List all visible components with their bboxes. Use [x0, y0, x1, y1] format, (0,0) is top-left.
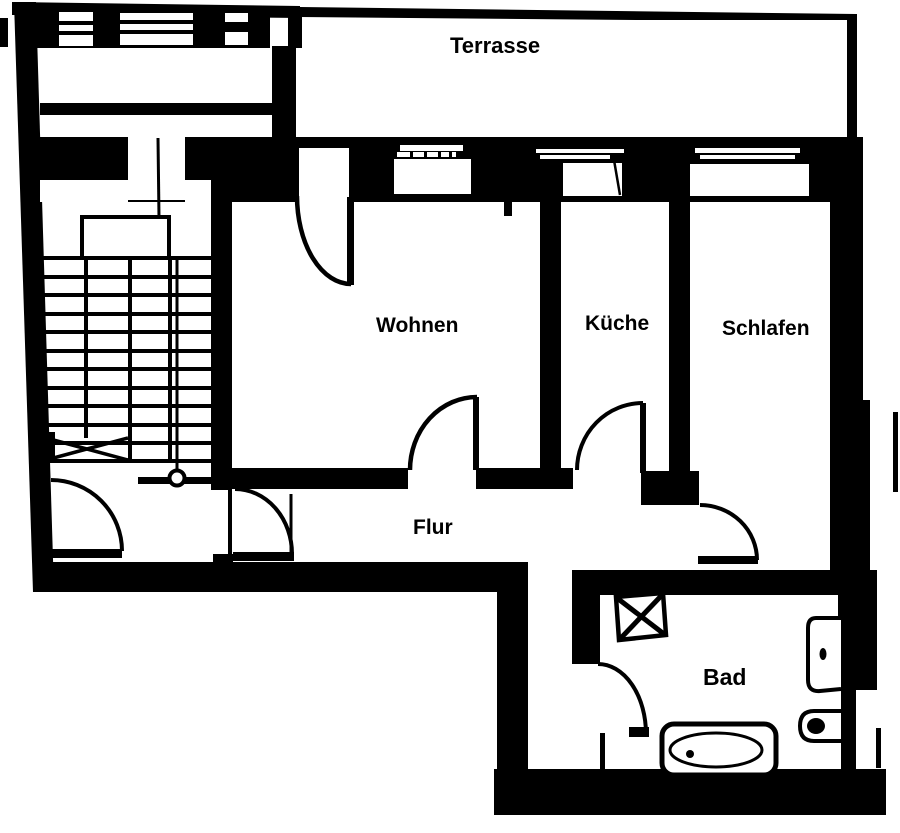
svg-text:Küche: Küche	[585, 312, 649, 335]
svg-text:Wohnen: Wohnen	[376, 314, 458, 337]
svg-text:Bad: Bad	[703, 664, 746, 690]
svg-text:Schlafen: Schlafen	[722, 317, 810, 340]
svg-text:Flur: Flur	[413, 516, 453, 539]
svg-text:Terrasse: Terrasse	[450, 33, 540, 58]
